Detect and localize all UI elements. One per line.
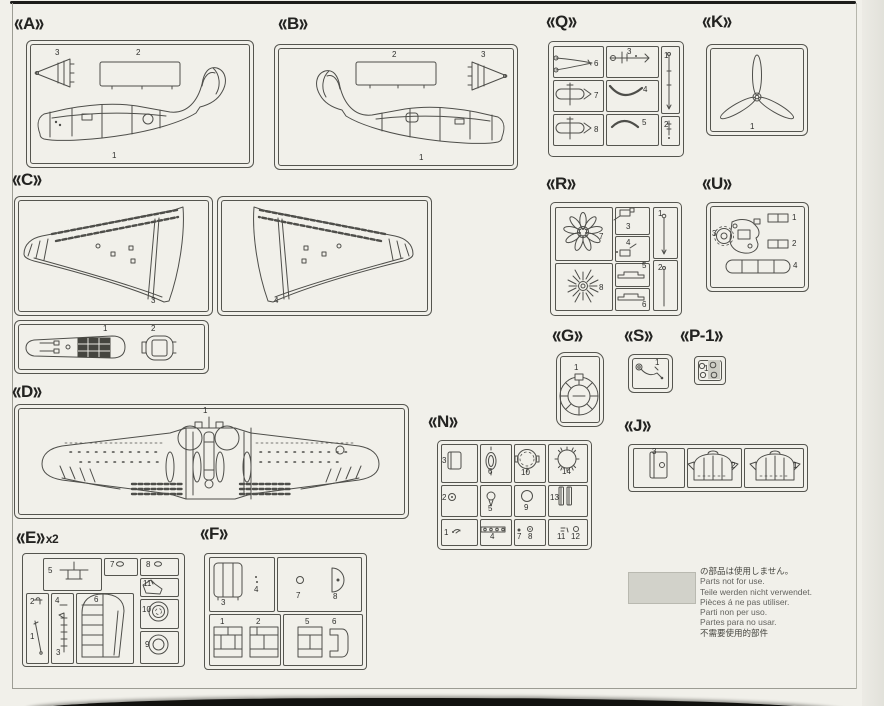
part-number-N-9: 9 — [524, 504, 528, 512]
part-number-U-2: 2 — [792, 240, 796, 248]
sprue-e-parts-drawing — [22, 553, 183, 665]
note-line-6: Partes para no usar. — [700, 617, 884, 627]
part-number-B-1: 1 — [419, 154, 423, 162]
part-number-R-4: 4 — [626, 239, 630, 247]
wing-upper-left-drawing — [18, 202, 208, 312]
part-number-R-5: 5 — [642, 262, 646, 270]
part-number-F-5: 5 — [305, 618, 309, 626]
part-number-N-1: 1 — [444, 529, 448, 537]
part-number-A-3: 3 — [55, 49, 59, 57]
lower-wing-drawing — [20, 412, 401, 511]
part-number-R-8: 8 — [599, 284, 603, 292]
sprue-r-parts-drawing — [550, 202, 680, 314]
part-number-J-3: 3 — [652, 448, 656, 456]
part-number-Q-8: 8 — [594, 126, 598, 134]
clear-part-p1-drawing — [694, 356, 724, 383]
part-number-C-3: 3 — [151, 297, 155, 305]
part-number-E-3: 3 — [56, 649, 60, 657]
part-number-R-2: 2 — [658, 264, 662, 272]
part-number-N-12: 12 — [571, 533, 580, 541]
gray-parts-swatch — [628, 572, 696, 604]
section-label-F: «F» — [200, 524, 228, 544]
part-number-E-2: 2 — [30, 598, 34, 606]
part-number-E-11: 11 — [143, 580, 151, 588]
part-number-N-8: 8 — [528, 533, 532, 541]
section-label-B: «B» — [278, 14, 308, 34]
page-top-edge — [10, 1, 856, 4]
note-line-3: Teile werden nicht verwendet. — [700, 587, 884, 597]
part-number-Q-7: 7 — [594, 92, 598, 100]
part-number-E-4: 4 — [55, 597, 59, 605]
note-line-5: Parti non per uso. — [700, 607, 884, 617]
section-label-G: «G» — [552, 326, 583, 346]
sheet-frame-left — [12, 3, 13, 689]
part-number-N-14: 14 — [562, 468, 571, 476]
sprue-f-parts-drawing — [204, 553, 365, 668]
part-number-P-1-1: 1 — [704, 365, 708, 373]
part-number-U-4: 4 — [793, 262, 797, 270]
part-number-Q-4: 4 — [643, 86, 647, 94]
section-label-Q: «Q» — [546, 12, 577, 32]
part-number-Q-1: 1 — [664, 52, 668, 60]
part-number-U-3: 3 — [712, 230, 716, 238]
part-number-N-10: 10 — [521, 469, 530, 477]
section-label-C: «C» — [12, 170, 42, 190]
part-number-R-1: 1 — [658, 210, 662, 218]
part-number-E-7: 7 — [110, 561, 114, 569]
part-number-B-3: 3 — [481, 51, 485, 59]
part-number-F-1: 1 — [220, 618, 224, 626]
part-number-F-6: 6 — [332, 618, 336, 626]
scan-bottom-shadow — [26, 698, 850, 706]
part-number-D-1: 1 — [203, 407, 207, 415]
part-number-N-6: 6 — [488, 468, 492, 476]
part-number-E-8: 8 — [146, 561, 150, 569]
section-label-J: «J» — [624, 416, 651, 436]
note-line-2: Parts not for use. — [700, 576, 884, 586]
note-line-1: の部品は使用しません。 — [700, 566, 884, 576]
cowl-deck-and-ring-drawing — [20, 326, 203, 368]
parts-not-for-use-note: の部品は使用しません。Parts not for use.Teile werde… — [700, 566, 884, 638]
part-number-K-1: 1 — [750, 123, 754, 131]
section-label-R: «R» — [546, 174, 576, 194]
part-number-E-9: 9 — [145, 641, 149, 649]
fuselage-left-drawing — [280, 49, 512, 164]
part-number-Q-3: 3 — [627, 48, 631, 56]
part-number-C-1: 1 — [103, 325, 107, 333]
sprue-s-part-drawing — [628, 355, 671, 391]
section-label-P-1: «P-1» — [680, 326, 723, 346]
part-number-A-1: 1 — [112, 152, 116, 160]
part-number-R-6: 6 — [642, 301, 646, 309]
wheel-tire-drawing — [556, 354, 602, 425]
part-number-F-4: 4 — [254, 586, 258, 594]
part-number-E-10: 10 — [142, 606, 151, 614]
section-label-S: «S» — [624, 326, 653, 346]
part-number-S-1: 1 — [655, 359, 659, 367]
wing-upper-right-drawing — [221, 202, 426, 312]
part-number-E-1: 1 — [30, 633, 34, 641]
part-number-C-2: 2 — [151, 325, 155, 333]
section-label-K: «K» — [702, 12, 732, 32]
section-label-E: «E»x2 — [16, 528, 58, 548]
part-number-N-2: 2 — [442, 494, 446, 502]
part-number-N-11: 11 — [557, 533, 565, 541]
part-number-J-2: 2 — [731, 462, 735, 470]
part-number-R-3: 3 — [626, 223, 630, 231]
part-number-F-8: 8 — [333, 593, 337, 601]
part-number-N-13: 13 — [550, 494, 559, 502]
part-number-N-3: 3 — [442, 457, 446, 465]
part-number-E-6: 6 — [94, 596, 98, 604]
part-number-F-7: 7 — [296, 592, 300, 600]
part-number-Q-2: 2 — [664, 121, 668, 129]
part-number-U-1: 1 — [792, 214, 796, 222]
part-number-R-7: 7 — [599, 233, 603, 241]
section-label-N: «N» — [428, 412, 458, 432]
part-number-J-1: 1 — [793, 462, 797, 470]
part-number-C-4: 4 — [274, 297, 278, 305]
part-number-F-3: 3 — [221, 599, 225, 607]
part-number-G-1: 1 — [574, 364, 578, 372]
sprue-q-parts-drawing — [548, 41, 682, 155]
part-number-N-4: 4 — [490, 533, 494, 541]
sheet-frame-bottom — [12, 688, 857, 689]
fuselage-right-drawing — [32, 46, 248, 162]
note-line-7: 不需要使用的部件 — [700, 628, 884, 638]
section-label-A: «A» — [14, 14, 44, 34]
part-number-Q-5: 5 — [642, 119, 646, 127]
instruction-sheet-page: の部品は使用しません。Parts not for use.Teile werde… — [0, 0, 884, 706]
part-number-B-2: 2 — [392, 51, 396, 59]
sprue-n-parts-drawing — [437, 440, 590, 548]
part-number-Q-6: 6 — [594, 60, 598, 68]
section-label-D: «D» — [12, 382, 42, 402]
note-line-4: Pièces á ne pas utiliser. — [700, 597, 884, 607]
part-number-E-5: 5 — [48, 567, 52, 575]
part-number-F-2: 2 — [256, 618, 260, 626]
part-number-N-7: 7 — [517, 533, 521, 541]
section-label-U: «U» — [702, 174, 732, 194]
part-number-N-5: 5 — [488, 505, 492, 513]
part-number-A-2: 2 — [136, 49, 140, 57]
propeller-drawing — [710, 47, 804, 132]
